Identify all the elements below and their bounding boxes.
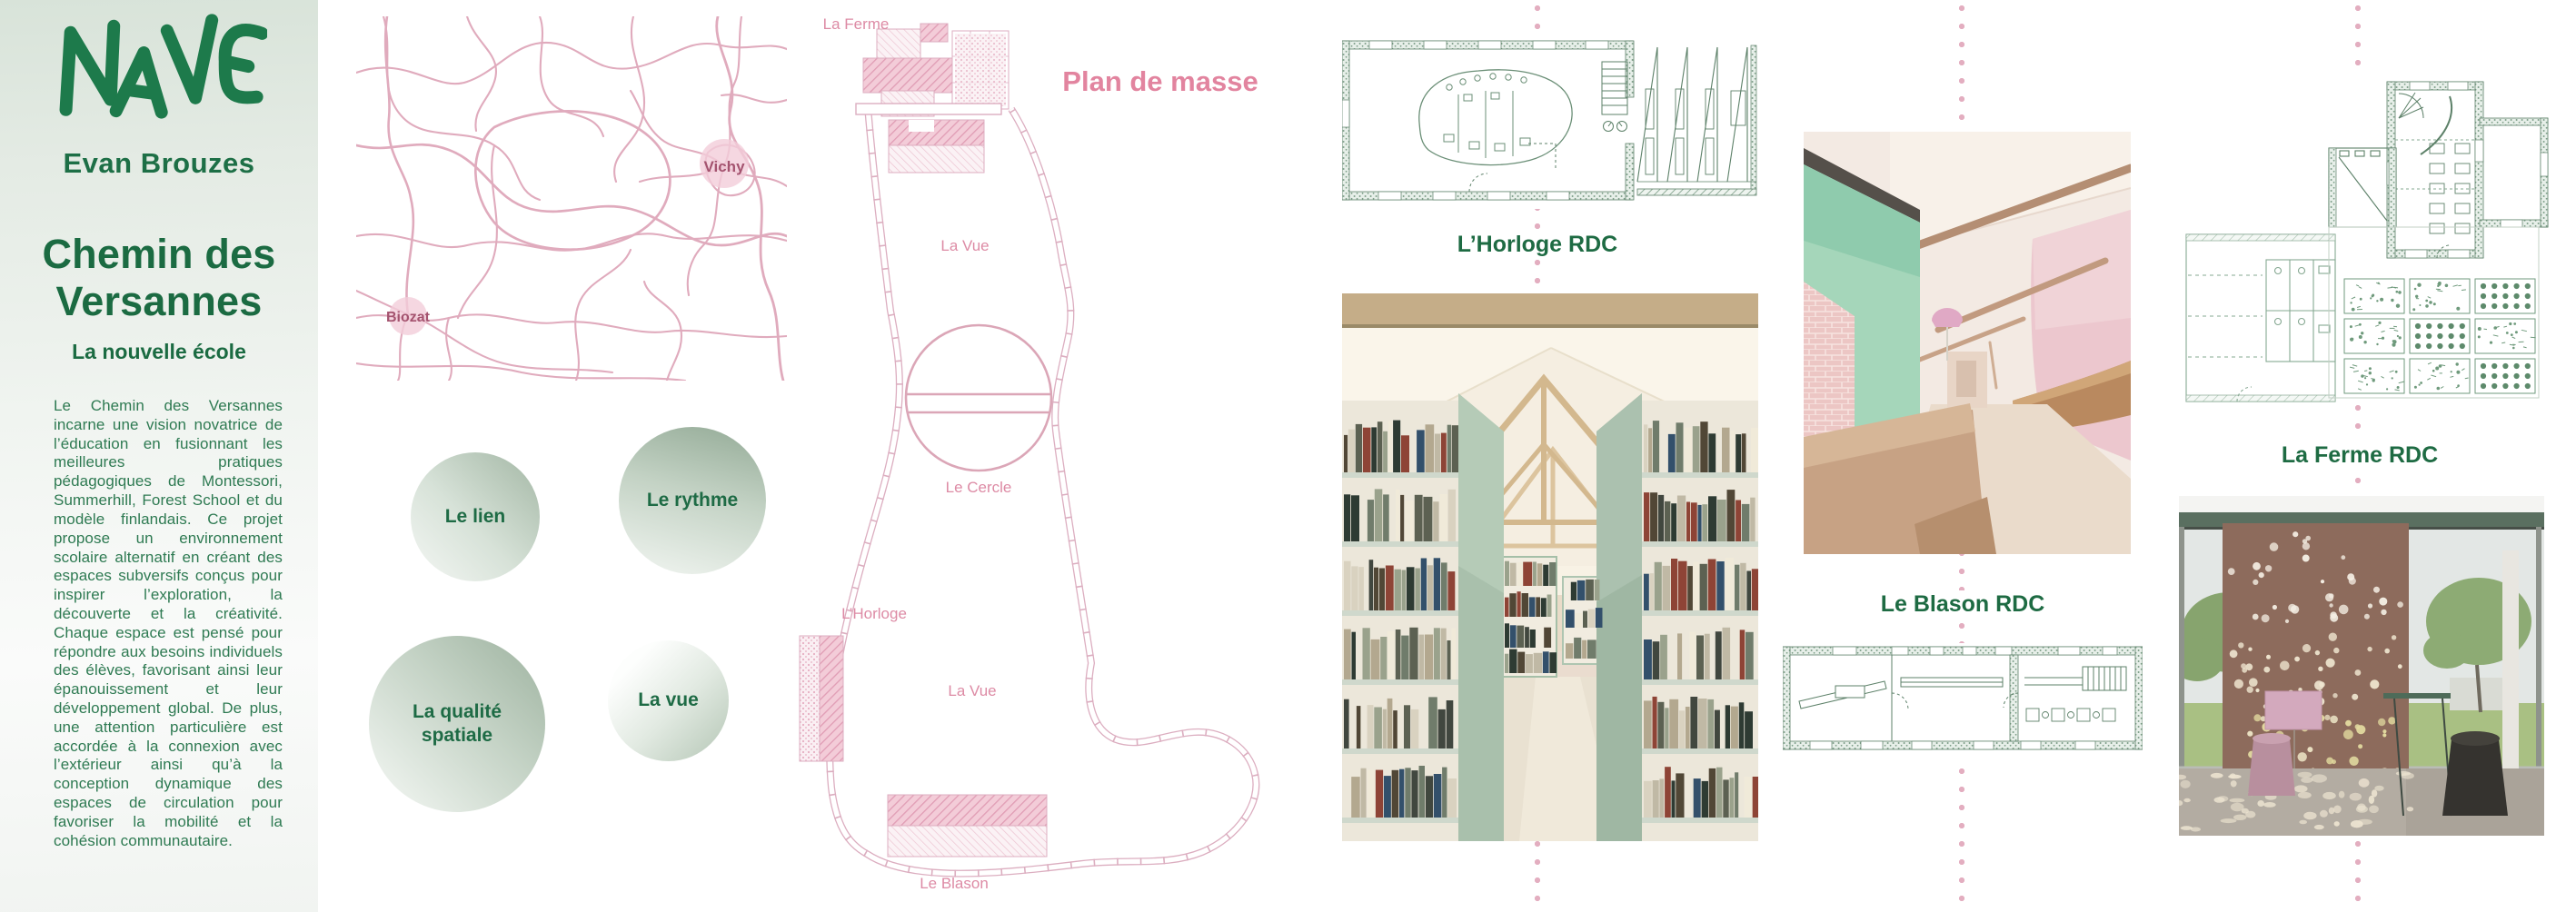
presentation-board: Evan Brouzes Chemin des Versannes La nou…: [0, 0, 2576, 912]
project-subtitle: La nouvelle école: [0, 340, 318, 364]
horloge-floor-plan: [1342, 36, 1758, 209]
ferme-rdc-label: La Ferme RDC: [2273, 441, 2447, 470]
concept-label: La qualité spatiale: [403, 700, 512, 748]
author-name: Evan Brouzes: [0, 147, 318, 180]
siteplan-label-vue-bottom: La Vue: [948, 682, 996, 699]
siteplan-label-cercle: Le Cercle: [946, 479, 1012, 496]
concept-circle-lien: Le lien: [411, 452, 540, 581]
map-label-biozat: Biozat: [386, 310, 431, 325]
sidebar: Evan Brouzes Chemin des Versannes La nou…: [0, 0, 318, 912]
blason-floor-plan: [1783, 643, 2143, 756]
concept-circle-vue: La vue: [608, 640, 729, 761]
nave-logo: [53, 13, 267, 142]
ferme-floor-plan: [2183, 53, 2568, 409]
site-plan: La Ferme Plan de masse La Vue Le Cercle …: [791, 9, 1281, 908]
blason-rdc-label: Le Blason RDC: [1872, 590, 2054, 619]
siteplan-label-ferme: La Ferme: [823, 15, 890, 33]
horloge-rdc-label: L’Horloge RDC: [1448, 231, 1626, 259]
perforated-wall-render: [2179, 496, 2544, 836]
corridor-interior-render: [1804, 132, 2131, 554]
library-interior-render: [1342, 293, 1758, 841]
siteplan-label-vue-top: La Vue: [940, 237, 989, 254]
concept-circle-rythme: Le rythme: [619, 427, 766, 574]
concept-circle-qualite: La qualité spatiale: [369, 636, 545, 812]
siteplan-label-horloge: L’Horloge: [841, 605, 907, 622]
map-label-vichy: Vichy: [703, 158, 745, 175]
concept-label: Le rythme: [647, 489, 738, 512]
concept-label: La vue: [638, 689, 699, 712]
project-description: Le Chemin des Versannes incarne une visi…: [54, 397, 283, 851]
siteplan-title: Plan de masse: [1062, 65, 1258, 97]
siteplan-label-blason: Le Blason: [920, 875, 989, 892]
location-map: Vichy Biozat: [356, 16, 787, 381]
concept-label: Le lien: [445, 505, 506, 529]
project-title: Chemin des Versannes: [27, 231, 291, 325]
